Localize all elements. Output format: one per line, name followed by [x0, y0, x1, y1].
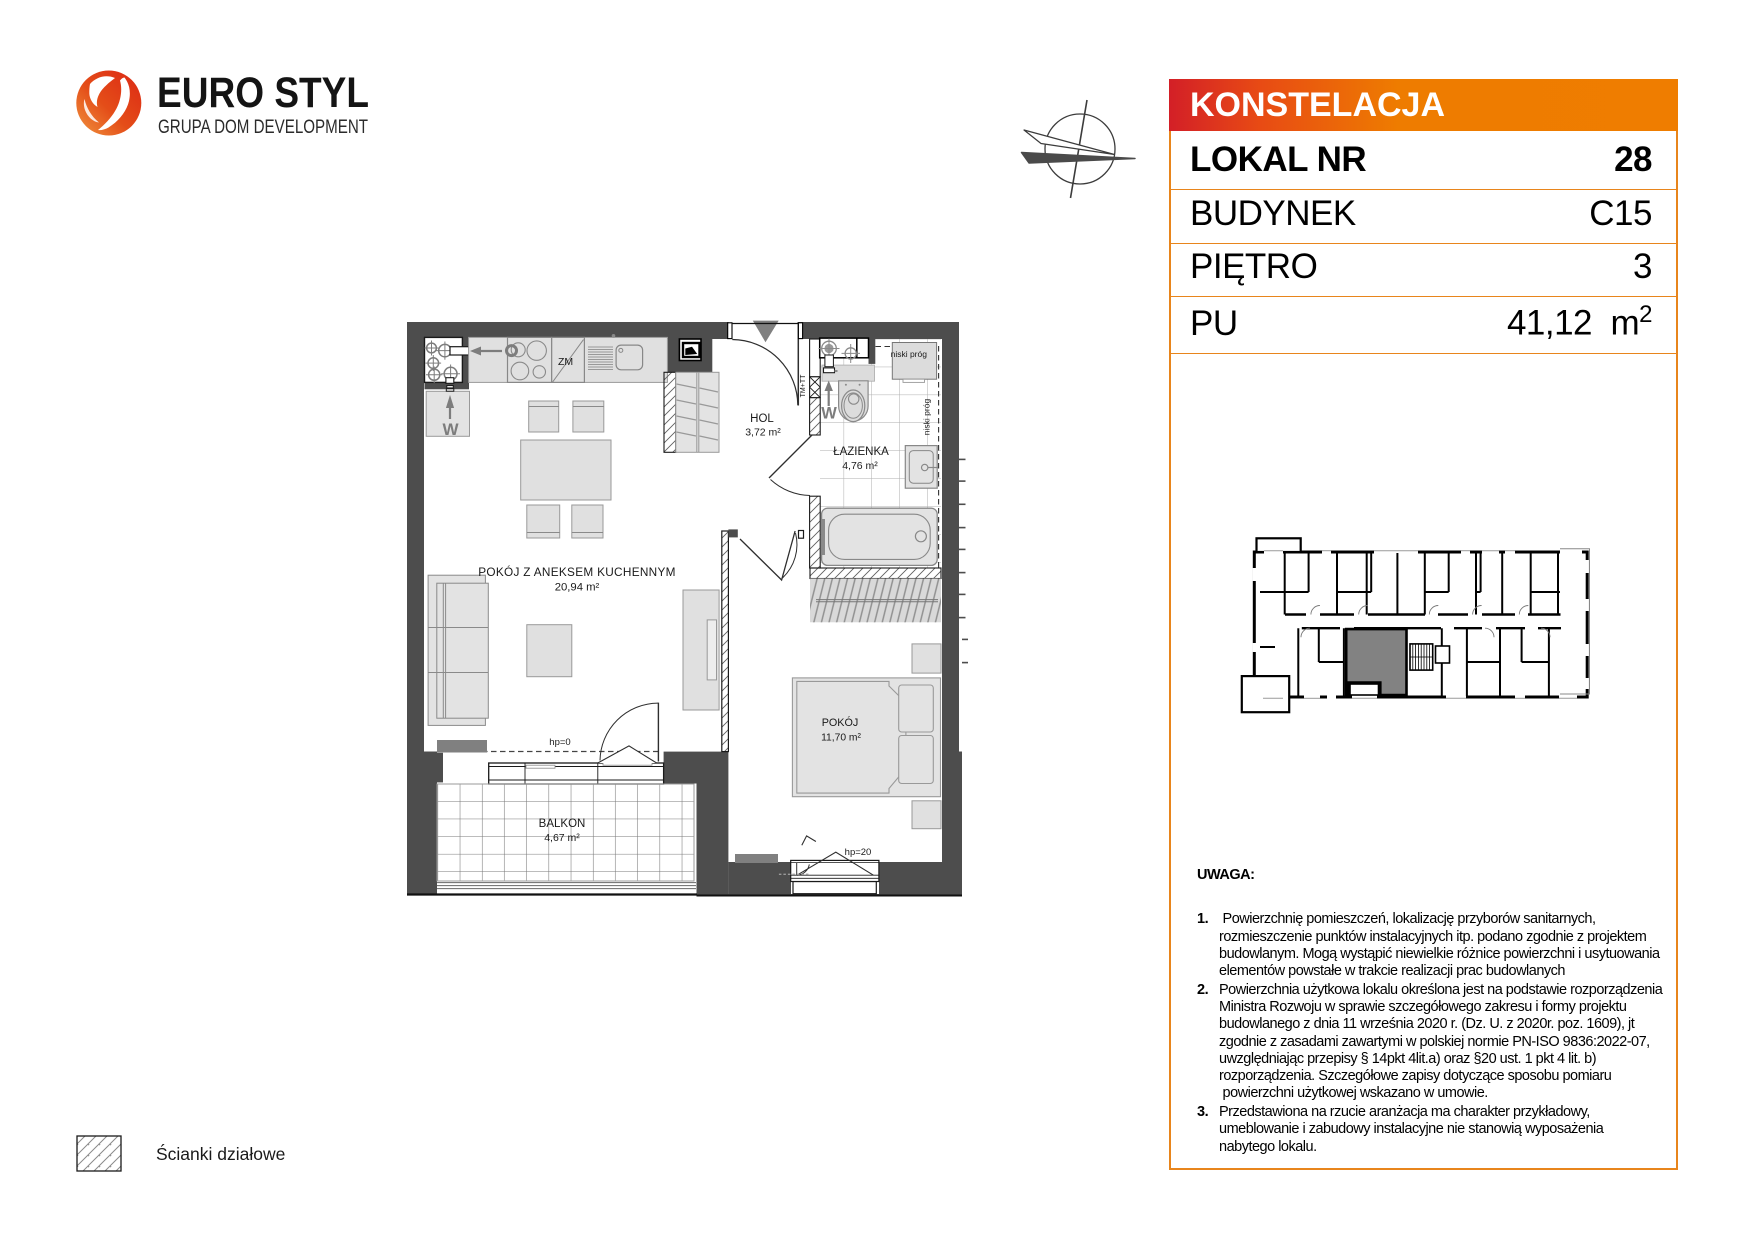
svg-text:W: W — [442, 420, 459, 439]
svg-text:4,67 m²: 4,67 m² — [544, 832, 580, 844]
svg-text:EURO STYL: EURO STYL — [157, 69, 369, 117]
svg-text:4,76 m²: 4,76 m² — [842, 460, 878, 472]
svg-text:HOL: HOL — [750, 413, 774, 425]
svg-text:11,70 m²: 11,70 m² — [821, 733, 861, 744]
svg-text:20,94 m²: 20,94 m² — [555, 582, 600, 594]
svg-text:TM+TT: TM+TT — [800, 374, 807, 397]
svg-text:ZM: ZM — [558, 356, 573, 368]
svg-text:POKÓJ: POKÓJ — [822, 716, 859, 729]
svg-text:niski próg: niski próg — [922, 399, 932, 436]
svg-text:Ścianki działowe: Ścianki działowe — [156, 1143, 285, 1164]
svg-text:3,72 m²: 3,72 m² — [745, 427, 781, 439]
svg-text:GRUPA DOM DEVELOPMENT: GRUPA DOM DEVELOPMENT — [158, 116, 368, 138]
svg-text:POKÓJ Z ANEKSEM KUCHENNYM: POKÓJ Z ANEKSEM KUCHENNYM — [478, 565, 676, 579]
svg-text:ŁAZIENKA: ŁAZIENKA — [833, 446, 889, 458]
svg-text:BALKON: BALKON — [539, 818, 586, 830]
svg-text:hp=20: hp=20 — [845, 847, 872, 858]
svg-text:hp=0: hp=0 — [549, 737, 570, 748]
svg-text:W: W — [821, 405, 837, 423]
svg-text:niski próg: niski próg — [891, 349, 928, 359]
